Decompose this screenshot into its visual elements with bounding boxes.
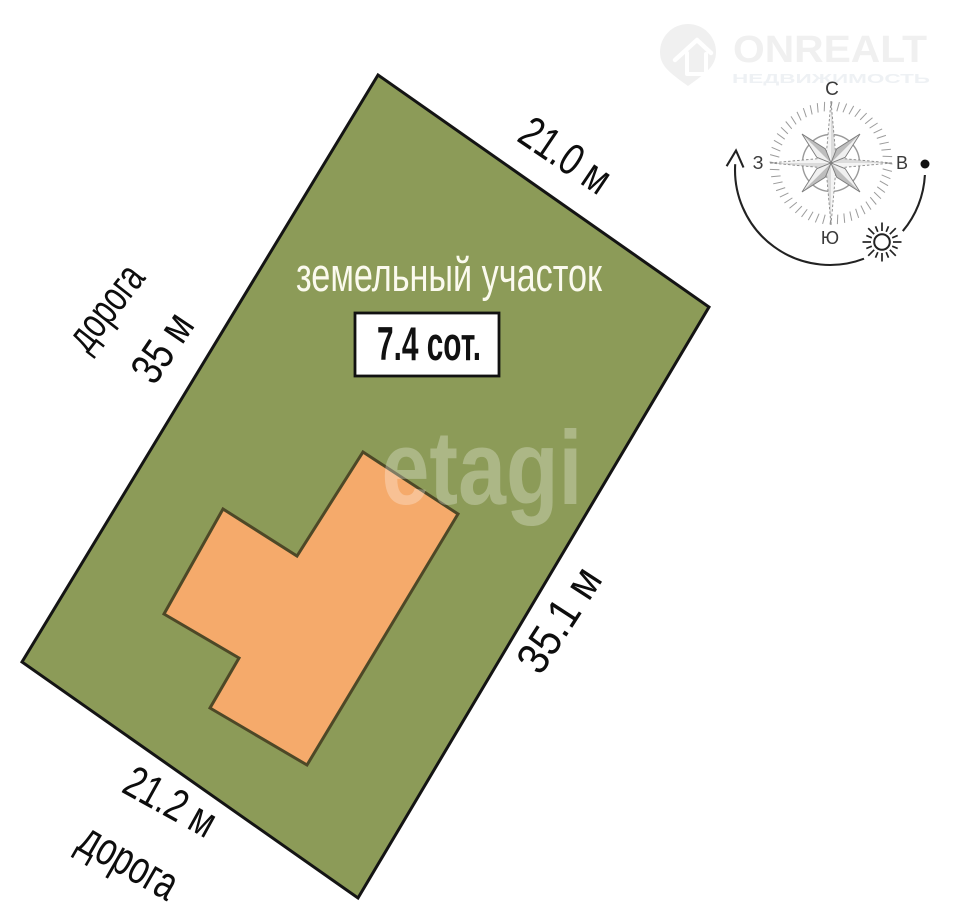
svg-text:ONREALT: ONREALT [733,29,927,71]
svg-text:земельный участок: земельный участок [296,248,602,301]
svg-text:etagi: etagi [382,410,583,527]
svg-text:7.4 сот.: 7.4 сот. [377,317,481,370]
svg-text:З: З [753,153,764,173]
svg-text:В: В [896,153,908,173]
svg-text:Ю: Ю [821,228,839,248]
svg-text:С: С [825,79,839,100]
